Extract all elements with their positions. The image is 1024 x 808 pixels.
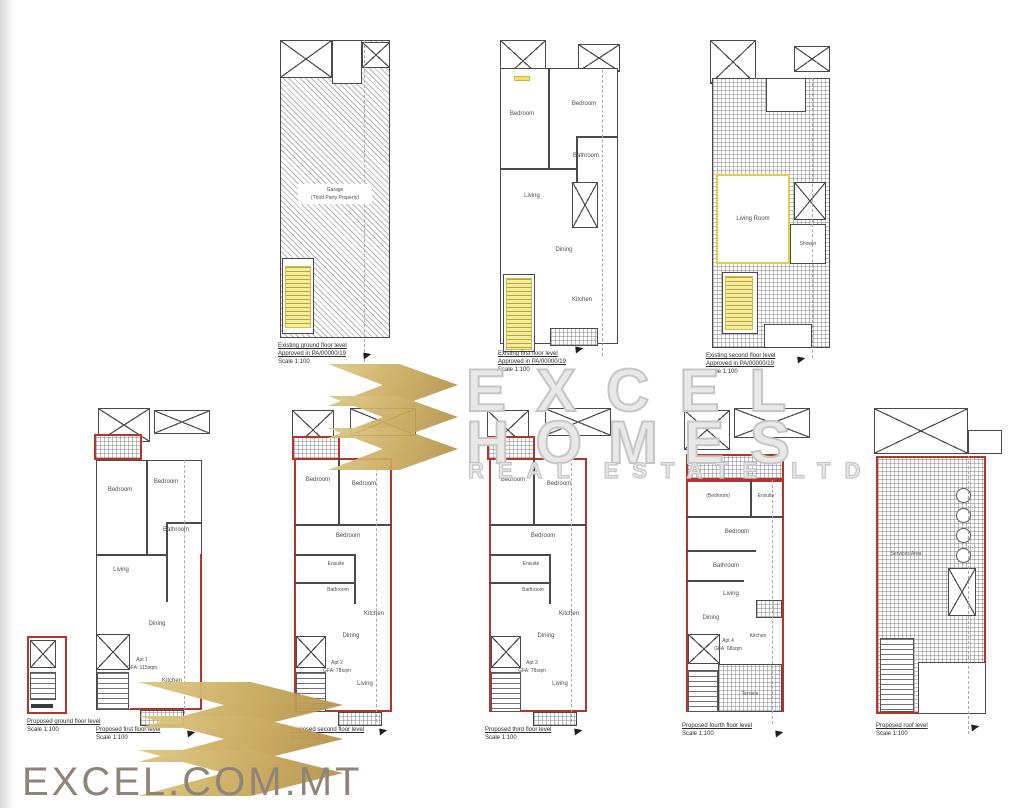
room-label: Kitchen (750, 633, 767, 639)
section-line (812, 78, 813, 358)
lift-shaft (794, 182, 826, 220)
roof-recess (766, 78, 806, 112)
partition (489, 554, 549, 556)
section-line (968, 456, 969, 734)
room-label: Bedroom (352, 481, 376, 487)
partition (549, 554, 551, 604)
roof-step (968, 430, 1002, 454)
apartment-label: Apt 3 (526, 660, 538, 666)
room-label: Kitchen (364, 611, 384, 617)
room-label: Dining (148, 621, 165, 627)
room-label: Dining (537, 633, 554, 639)
room-label: Kitchen (572, 297, 592, 303)
section-arrow-icon (572, 727, 583, 738)
room-label: Bedroom (336, 533, 360, 539)
apartment-gfa-label: GFA: 68sqm (714, 646, 742, 652)
chevron-shape (328, 428, 458, 470)
section-line (602, 70, 603, 356)
partition (294, 554, 354, 556)
section-arrow-icon (773, 729, 784, 740)
partition (354, 554, 356, 604)
partition (489, 524, 587, 526)
partition (96, 554, 168, 556)
lower-roof (918, 662, 986, 714)
partition (686, 580, 744, 582)
room-label: Bedroom (510, 111, 534, 117)
apartment-gfa-label: GFA: 78sqm (518, 668, 546, 674)
plan-existing-first-floor: Bedroom Bedroom Bathroom Living Dining K… (498, 26, 622, 374)
room-label: Living (524, 193, 540, 199)
staircase (97, 672, 129, 710)
section-arrow-icon (377, 727, 388, 738)
room-label: Dining (342, 633, 359, 639)
partition (166, 522, 168, 602)
plan-caption: Proposed fourth floor level Scale 1:100 (682, 722, 752, 738)
partition (294, 582, 354, 584)
staircase (880, 638, 914, 712)
partition (489, 582, 549, 584)
partition (500, 168, 576, 170)
partition (750, 480, 752, 516)
apartment-label: Apt 4 (722, 638, 734, 644)
partition (686, 516, 784, 518)
section-line (376, 458, 377, 722)
apartment-label: Apt 1 (136, 657, 148, 663)
room-label: Bathroom (163, 527, 189, 533)
lower-roof-recess (764, 324, 812, 348)
room-label: Bathroom (573, 153, 599, 159)
apartment-gfa-label: GFA: 115sqm (127, 665, 157, 671)
floorplan-sheet: Garage (Third Party Property) Existing g… (0, 0, 1024, 808)
room-label: (Bedroom) (706, 493, 730, 499)
section-arrow-icon (361, 351, 372, 362)
page-edge-shadow (0, 0, 14, 808)
room-label: (Third Party Property) (311, 195, 359, 201)
room-label: Bathroom (327, 587, 349, 593)
staircase (285, 266, 311, 328)
plan-caption: Proposed third floor level Scale 1:100 (485, 726, 551, 742)
room-label: Ensuite (328, 561, 345, 567)
lift-shaft (96, 634, 130, 670)
lift-shaft (30, 640, 56, 668)
apartment-label: Apt 2 (331, 660, 343, 666)
plan-caption: Proposed roof level Scale 1:100 (876, 722, 928, 738)
room-label: Living (552, 681, 568, 687)
partition (686, 550, 756, 552)
staircase (30, 672, 56, 700)
lift-overrun (948, 568, 976, 616)
partition (146, 460, 148, 556)
footer-site-text: EXCEL.COM.MT (22, 760, 362, 805)
entry-recess (332, 40, 362, 84)
plan-proposed-ground-floor: Proposed ground floor level Scale 1:100 (27, 634, 97, 764)
lift-shaft (491, 636, 521, 668)
staircase (725, 276, 753, 330)
lift-shaft (572, 182, 598, 228)
plan-caption: Existing ground floor level Approved in … (278, 342, 347, 366)
partition (294, 524, 392, 526)
plan-existing-ground-floor: Garage (Third Party Property) Existing g… (278, 26, 394, 370)
room-label: Shower (800, 241, 817, 247)
room-label: Ensuite (523, 561, 540, 567)
staircase (506, 278, 532, 350)
apartment-gfa-label: GFA: 78sqm (323, 668, 351, 674)
roof-brace (154, 410, 210, 434)
room-label: Garage (327, 187, 344, 193)
staircase (491, 672, 521, 712)
staircase (688, 670, 718, 712)
room-label: Kitchen (559, 611, 579, 617)
room-label: Living (113, 567, 129, 573)
room-label: Bedroom (306, 477, 330, 483)
room-label: Living (357, 681, 373, 687)
room-label: Living (723, 591, 739, 597)
room-label: Bedroom (531, 533, 555, 539)
highlighted-opening (514, 76, 530, 81)
party-wall-brace (362, 42, 390, 68)
party-wall-brace (280, 40, 332, 78)
entrance-door (31, 704, 53, 708)
party-wall-brace (874, 408, 968, 454)
section-line (772, 480, 773, 724)
watermark-subtitle: REAL ESTATE LTD (468, 458, 874, 484)
party-wall-brace (794, 46, 830, 72)
room-label: Services Area (891, 551, 922, 557)
lift-overrun (756, 600, 782, 618)
partition (548, 68, 550, 168)
section-line (571, 458, 572, 722)
partition (576, 136, 618, 138)
room-label: Bathroom (522, 587, 544, 593)
room-label: Terrace (742, 691, 759, 697)
plan-proposed-roof: Services Area Proposed roof level Scale … (872, 404, 1008, 748)
plan-existing-second-floor: Living Room Shower Existing second floor… (706, 26, 834, 378)
room-label: Dining (702, 615, 719, 621)
room-label: Bathroom (713, 563, 739, 569)
entrance-step (550, 328, 598, 346)
plan-caption: Proposed ground floor level Scale 1:100 (27, 718, 100, 734)
room-label: Ensuite (758, 493, 775, 499)
room-label-box: Garage (Third Party Property) (298, 184, 372, 204)
section-arrow-icon (969, 723, 980, 734)
room-label: Dining (555, 247, 572, 253)
room-label: Bedroom (108, 487, 132, 493)
room-label: Bedroom (725, 529, 749, 535)
room-label: Bedroom (154, 479, 178, 485)
excel-homes-logo-icon (328, 364, 460, 472)
room-label: Living Room (736, 216, 769, 222)
balcony (94, 434, 142, 460)
room-label: Bedroom (572, 101, 596, 107)
section-arrow-icon (573, 345, 584, 356)
lift-shaft (296, 636, 326, 668)
